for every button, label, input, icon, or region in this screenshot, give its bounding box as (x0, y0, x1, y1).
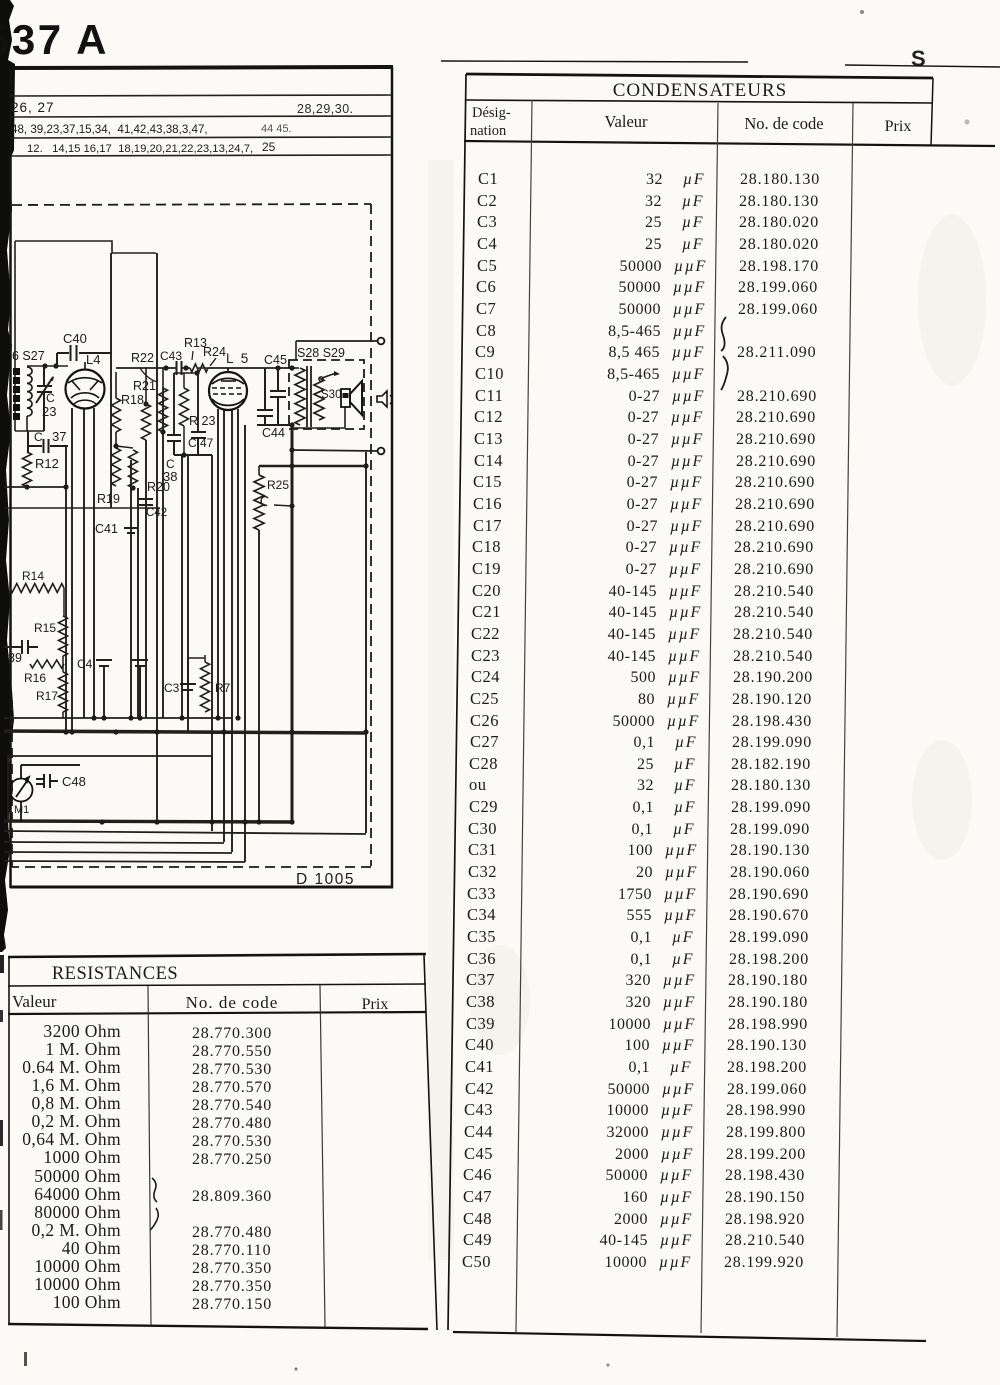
svg-text:25: 25 (645, 236, 662, 253)
svg-text:C49: C49 (463, 1230, 492, 1249)
svg-text:28.770.150: 28.770.150 (192, 1296, 272, 1313)
svg-text:26, 27: 26, 27 (11, 100, 55, 115)
svg-text:CONDENSATEURS: CONDENSATEURS (613, 80, 788, 101)
svg-text:L4: L4 (86, 352, 100, 367)
svg-text:28.198.200: 28.198.200 (727, 1059, 807, 1076)
svg-text:28.198.920: 28.198.920 (725, 1211, 805, 1228)
svg-text:40-145: 40-145 (608, 648, 656, 665)
svg-text:C34: C34 (467, 905, 496, 924)
svg-text:C48: C48 (62, 774, 86, 789)
svg-text:C43: C43 (160, 349, 182, 363)
svg-text:1750: 1750 (618, 886, 652, 903)
svg-text:R17: R17 (36, 689, 58, 703)
svg-text:µF: µF (674, 756, 696, 773)
svg-text:µµF: µµF (670, 518, 703, 535)
svg-text:28.210.690: 28.210.690 (734, 539, 814, 556)
svg-text:28.210.690: 28.210.690 (736, 453, 816, 470)
svg-text:1 M. Ohm: 1 M. Ohm (45, 1039, 121, 1059)
svg-text:C28: C28 (469, 754, 498, 773)
svg-text:0,1: 0,1 (633, 799, 655, 816)
svg-text:Valeur: Valeur (604, 112, 648, 131)
svg-text:µµF: µµF (668, 669, 701, 686)
svg-text:100: 100 (625, 1037, 651, 1054)
svg-text:8,5 465: 8,5 465 (609, 344, 661, 361)
svg-text:28.180.130: 28.180.130 (740, 171, 820, 188)
svg-text:0,2 M. Ohm: 0,2 M. Ohm (31, 1220, 121, 1240)
svg-text:C10: C10 (475, 364, 504, 383)
svg-text:C47: C47 (463, 1187, 492, 1206)
svg-text:40-145: 40-145 (608, 626, 656, 643)
svg-text:No. de code: No. de code (186, 993, 279, 1012)
svg-text:0-27: 0-27 (627, 518, 658, 535)
svg-text:8,5-465: 8,5-465 (607, 366, 660, 383)
svg-text:28.190.120: 28.190.120 (732, 691, 812, 708)
svg-text:µµF: µµF (663, 1016, 696, 1033)
svg-text:28.770.350: 28.770.350 (192, 1260, 272, 1277)
svg-text:µF: µF (682, 193, 704, 210)
svg-text:µµF: µµF (672, 366, 705, 383)
svg-text:C24: C24 (471, 667, 500, 686)
svg-text:C29: C29 (469, 797, 498, 816)
svg-text:C25: C25 (470, 689, 499, 708)
svg-text:C5: C5 (477, 256, 497, 275)
svg-text:µµF: µµF (661, 1102, 694, 1119)
svg-text:µF: µF (675, 734, 697, 751)
svg-text:44 45.: 44 45. (261, 123, 292, 135)
svg-text:S30: S30 (321, 389, 341, 401)
svg-text:100: 100 (628, 842, 654, 859)
svg-text:µµF: µµF (670, 474, 703, 491)
svg-text:C18: C18 (472, 537, 501, 556)
svg-text:C32: C32 (468, 862, 497, 881)
svg-text:537 A: 537 A (0, 16, 109, 63)
svg-text:C4: C4 (77, 657, 93, 671)
svg-text:No. de code: No. de code (744, 114, 823, 133)
svg-text:R24: R24 (203, 345, 226, 359)
svg-text:µµF: µµF (665, 842, 698, 859)
svg-text:µµF: µµF (667, 691, 700, 708)
svg-text:28.190.060: 28.190.060 (730, 864, 810, 881)
svg-text:28.198.990: 28.198.990 (726, 1102, 806, 1119)
svg-text:20: 20 (636, 864, 653, 881)
svg-text:28.770.530: 28.770.530 (192, 1133, 272, 1150)
svg-text:D 1005: D 1005 (296, 871, 355, 888)
svg-text:µF: µF (672, 929, 694, 946)
svg-text:C37: C37 (466, 970, 495, 989)
svg-text:80000 Ohm: 80000 Ohm (34, 1202, 121, 1222)
svg-text:µµF: µµF (668, 648, 701, 665)
svg-text:555: 555 (627, 907, 653, 924)
svg-text:µµF: µµF (659, 1254, 692, 1271)
svg-text:C: C (46, 391, 55, 405)
svg-text:80: 80 (638, 691, 655, 708)
svg-text:28.210.690: 28.210.690 (736, 409, 816, 426)
svg-text:C4: C4 (477, 234, 497, 253)
svg-text:28.770.250: 28.770.250 (192, 1151, 272, 1168)
svg-text:64000 Ohm: 64000 Ohm (34, 1184, 121, 1204)
svg-text:µµF: µµF (672, 344, 705, 361)
svg-text:28.770.530: 28.770.530 (192, 1061, 272, 1078)
svg-text:28.770.540: 28.770.540 (192, 1097, 272, 1114)
svg-text:C35: C35 (467, 927, 496, 946)
svg-text:S28 S29: S28 S29 (297, 346, 345, 360)
svg-text:48, 39,23,37,15,34, 41,42,43,: 48, 39,23,37,15,34, 41,42,43,38,3,47, (11, 123, 208, 136)
svg-text:Valeur: Valeur (12, 992, 57, 1011)
svg-text:C48: C48 (463, 1209, 492, 1228)
svg-text:0,1: 0,1 (632, 821, 654, 838)
svg-text:µµF: µµF (663, 972, 696, 989)
svg-text:320: 320 (626, 994, 652, 1011)
svg-text:28.809.360: 28.809.360 (192, 1188, 272, 1205)
svg-text:3200 Ohm: 3200 Ohm (43, 1021, 121, 1041)
svg-text:µF: µF (683, 171, 705, 188)
svg-text:µµF: µµF (662, 1081, 695, 1098)
svg-text:38: 38 (163, 469, 177, 484)
svg-text:10000 Ohm: 10000 Ohm (34, 1274, 121, 1294)
svg-text:28.210.690: 28.210.690 (735, 518, 815, 535)
svg-text:28.210.690: 28.210.690 (734, 561, 814, 578)
svg-text:28.770.480: 28.770.480 (192, 1115, 272, 1132)
svg-text:28.190.130: 28.190.130 (730, 842, 810, 859)
svg-text:28.210.540: 28.210.540 (733, 626, 813, 643)
svg-text:µF: µF (672, 951, 694, 968)
svg-text:28.190.150: 28.190.150 (725, 1189, 805, 1206)
svg-text:C43: C43 (464, 1100, 493, 1119)
svg-text:C12: C12 (474, 407, 503, 426)
svg-text:C11: C11 (475, 386, 503, 405)
svg-text:S: S (911, 46, 926, 71)
svg-text:0,1: 0,1 (631, 929, 653, 946)
svg-text:32: 32 (645, 193, 662, 210)
svg-text:28.199.090: 28.199.090 (731, 799, 811, 816)
svg-text:28.180.020: 28.180.020 (739, 214, 819, 231)
svg-text:1000 Ohm: 1000 Ohm (43, 1147, 121, 1167)
svg-text:R14: R14 (22, 569, 44, 583)
svg-text:40-145: 40-145 (609, 604, 657, 621)
svg-text:28.198.200: 28.198.200 (729, 951, 809, 968)
svg-text:50000: 50000 (606, 1167, 649, 1184)
svg-text:µµF: µµF (668, 626, 701, 643)
svg-text:28.198.430: 28.198.430 (732, 713, 812, 730)
svg-text:28.180.020: 28.180.020 (739, 236, 819, 253)
svg-text:50000: 50000 (620, 258, 663, 275)
svg-text:28.210.540: 28.210.540 (733, 648, 813, 665)
svg-text:28.182.190: 28.182.190 (731, 756, 811, 773)
svg-text:µµF: µµF (669, 539, 702, 556)
svg-text:ou: ou (469, 775, 487, 794)
svg-text:µµF: µµF (672, 388, 705, 405)
svg-text:µµF: µµF (667, 713, 700, 730)
svg-text:32000: 32000 (607, 1124, 650, 1141)
svg-text:C45: C45 (264, 353, 287, 367)
svg-text:8,5-465: 8,5-465 (608, 323, 661, 340)
svg-text:12. 14,15 16,17 18,19,20,21: 12. 14,15 16,17 18,19,20,21,22,23,13,24,… (27, 143, 253, 155)
svg-text:28.199.090: 28.199.090 (730, 821, 810, 838)
svg-text:28.190.180: 28.190.180 (728, 972, 808, 989)
svg-text:28.770.110: 28.770.110 (192, 1242, 271, 1259)
svg-text:C50: C50 (462, 1252, 491, 1271)
svg-text:160: 160 (623, 1189, 649, 1206)
svg-text:28.770.550: 28.770.550 (192, 1043, 272, 1060)
svg-text:0-27: 0-27 (629, 388, 660, 405)
svg-text:µµF: µµF (660, 1189, 693, 1206)
svg-text:100 Ohm: 100 Ohm (53, 1292, 121, 1312)
svg-text:C13: C13 (474, 429, 503, 448)
svg-text:0-27: 0-27 (626, 561, 657, 578)
svg-text:28.190.690: 28.190.690 (729, 886, 809, 903)
svg-text:28.180.130: 28.180.130 (731, 777, 811, 794)
svg-text:R16: R16 (24, 671, 46, 685)
svg-text:R 23: R 23 (189, 414, 215, 428)
svg-text:28.770.350: 28.770.350 (192, 1278, 272, 1295)
svg-text:C: C (34, 430, 43, 444)
svg-text:0,1: 0,1 (634, 734, 656, 751)
svg-text:C41: C41 (465, 1057, 494, 1076)
svg-text:µµF: µµF (660, 1211, 693, 1228)
svg-text:0,8 M. Ohm: 0,8 M. Ohm (31, 1093, 121, 1113)
svg-text:40-145: 40-145 (600, 1232, 648, 1249)
svg-text:µµF: µµF (673, 323, 706, 340)
svg-text:C14: C14 (474, 451, 503, 470)
svg-text:C3: C3 (164, 681, 180, 695)
svg-text:µF: µF (670, 1059, 692, 1076)
svg-text:µµF: µµF (662, 1037, 695, 1054)
svg-text:R7: R7 (215, 681, 231, 695)
svg-text:RESISTANCES: RESISTANCES (52, 964, 178, 984)
svg-text:µµF: µµF (665, 864, 698, 881)
svg-text:C17: C17 (473, 516, 502, 535)
svg-text:0-27: 0-27 (626, 539, 657, 556)
svg-text:µµF: µµF (661, 1124, 694, 1141)
svg-text:M1: M1 (14, 804, 29, 816)
svg-text:C40: C40 (63, 331, 87, 346)
svg-text:10000: 10000 (605, 1254, 648, 1271)
svg-text:28.198.990: 28.198.990 (728, 1016, 808, 1033)
svg-text:C22: C22 (471, 624, 500, 643)
svg-text:50000: 50000 (619, 279, 662, 296)
svg-text:R21: R21 (133, 379, 156, 393)
svg-text:25: 25 (262, 140, 276, 154)
svg-text:µF: µF (682, 236, 704, 253)
svg-text:C38: C38 (466, 992, 495, 1011)
svg-text:Prix: Prix (362, 996, 389, 1013)
svg-text:C3: C3 (477, 212, 497, 231)
svg-text:0,64 M. Ohm: 0,64 M. Ohm (22, 1129, 121, 1149)
svg-text:µµF: µµF (671, 453, 704, 470)
svg-text:C44: C44 (464, 1122, 493, 1141)
svg-text:28.770.480: 28.770.480 (192, 1224, 272, 1241)
svg-text:C21: C21 (472, 602, 501, 621)
svg-text:28,29,30.: 28,29,30. (297, 102, 354, 116)
svg-text:28.190.200: 28.190.200 (733, 669, 813, 686)
svg-text:C30: C30 (468, 819, 497, 838)
svg-text:0-27: 0-27 (628, 431, 659, 448)
svg-text:C44: C44 (262, 426, 285, 440)
svg-text:µF: µF (674, 799, 696, 816)
svg-text:R25: R25 (267, 478, 289, 492)
svg-text:C15: C15 (473, 472, 502, 491)
svg-text:µµF: µµF (660, 1232, 693, 1249)
svg-text:320: 320 (626, 972, 652, 989)
svg-text:µµF: µµF (661, 1146, 694, 1163)
svg-text:C20: C20 (472, 581, 501, 600)
svg-text:R15: R15 (34, 621, 56, 635)
svg-text:R22: R22 (131, 351, 154, 365)
svg-text:40 Ohm: 40 Ohm (62, 1238, 121, 1258)
svg-text:0-27: 0-27 (627, 496, 658, 513)
svg-text:0-27: 0-27 (628, 453, 659, 470)
svg-text:32: 32 (646, 171, 663, 188)
svg-text:µF: µF (682, 214, 704, 231)
svg-text:Prix: Prix (885, 118, 912, 135)
svg-text:0,1: 0,1 (631, 951, 653, 968)
svg-text:28.199.060: 28.199.060 (738, 279, 818, 296)
svg-text:C9: C9 (475, 342, 495, 361)
svg-text:µµF: µµF (660, 1167, 693, 1184)
svg-text:µµF: µµF (664, 886, 697, 903)
svg-text:C8: C8 (476, 321, 496, 340)
svg-text:C42: C42 (465, 1079, 494, 1098)
svg-text:2000: 2000 (614, 1211, 648, 1228)
svg-text:23: 23 (42, 404, 56, 419)
svg-text:28.770.300: 28.770.300 (192, 1025, 272, 1042)
svg-text:28.210.540: 28.210.540 (725, 1232, 805, 1249)
svg-text:28.210.690: 28.210.690 (736, 431, 816, 448)
svg-text:28.180.130: 28.180.130 (739, 193, 819, 210)
svg-text:1,6 M. Ohm: 1,6 M. Ohm (31, 1075, 121, 1095)
svg-text:25: 25 (637, 756, 654, 773)
svg-text:0.64 M. Ohm: 0.64 M. Ohm (22, 1057, 121, 1077)
svg-text:C27: C27 (470, 732, 499, 751)
svg-text:28.210.540: 28.210.540 (734, 604, 814, 621)
svg-text:C6: C6 (476, 277, 496, 296)
svg-text:28.198.430: 28.198.430 (725, 1167, 805, 1184)
svg-text:µµF: µµF (673, 301, 706, 318)
svg-text:28.190.180: 28.190.180 (728, 994, 808, 1011)
svg-text:C42: C42 (146, 507, 167, 519)
svg-text:28.210.690: 28.210.690 (737, 388, 817, 405)
svg-text:C2: C2 (477, 191, 497, 210)
svg-text:Désig-: Désig- (472, 105, 511, 121)
svg-text:40-145: 40-145 (609, 583, 657, 600)
svg-text:28.199.090: 28.199.090 (729, 929, 809, 946)
svg-text:28.190.130: 28.190.130 (727, 1037, 807, 1054)
svg-text:µµF: µµF (673, 279, 706, 296)
svg-text:500: 500 (631, 669, 657, 686)
svg-text:28.210.690: 28.210.690 (735, 496, 815, 513)
svg-text:C23: C23 (471, 646, 500, 665)
svg-text:R19: R19 (97, 492, 120, 506)
svg-text:C40: C40 (465, 1035, 494, 1054)
svg-text:µµF: µµF (663, 994, 696, 1011)
svg-text:28.198.170: 28.198.170 (739, 258, 819, 275)
svg-text:28.199.090: 28.199.090 (732, 734, 812, 751)
svg-text:2000: 2000 (615, 1146, 649, 1163)
svg-text:28.770.570: 28.770.570 (192, 1079, 272, 1096)
svg-text:0,1: 0,1 (629, 1059, 651, 1076)
svg-text:C36: C36 (467, 949, 496, 968)
svg-text:28.190.670: 28.190.670 (729, 907, 809, 924)
svg-text:50000: 50000 (608, 1081, 651, 1098)
svg-text:25: 25 (645, 214, 662, 231)
svg-text:32: 32 (637, 777, 654, 794)
svg-text:R12: R12 (35, 456, 59, 471)
svg-text:C39: C39 (466, 1014, 495, 1033)
svg-text:µµF: µµF (671, 431, 704, 448)
svg-text:µF: µF (674, 777, 696, 794)
svg-text:µµF: µµF (669, 583, 702, 600)
svg-text:10000: 10000 (609, 1016, 652, 1033)
svg-text:C16: C16 (473, 494, 502, 513)
svg-text:L 5: L 5 (226, 351, 250, 366)
svg-text:6 S27: 6 S27 (12, 349, 45, 363)
svg-text:µµF: µµF (670, 496, 703, 513)
svg-text:C46: C46 (463, 1165, 492, 1184)
svg-text:0-27: 0-27 (628, 409, 659, 426)
svg-text:28.199.060: 28.199.060 (727, 1081, 807, 1098)
svg-text:µµF: µµF (674, 258, 707, 275)
svg-text:50000: 50000 (613, 713, 656, 730)
svg-text:C1: C1 (478, 169, 498, 188)
svg-text:28.210.540: 28.210.540 (734, 583, 814, 600)
svg-text:nation: nation (470, 123, 507, 139)
svg-text:C 47: C 47 (188, 436, 214, 450)
svg-text:R18: R18 (121, 393, 144, 407)
svg-text:28.199.200: 28.199.200 (726, 1146, 806, 1163)
svg-text:µµF: µµF (669, 561, 702, 578)
svg-text:C41: C41 (95, 522, 118, 536)
svg-text:28.199.920: 28.199.920 (724, 1254, 804, 1271)
svg-text:37: 37 (52, 429, 66, 444)
svg-text:39: 39 (8, 651, 22, 665)
svg-text:µµF: µµF (671, 409, 704, 426)
svg-text:10000 Ohm: 10000 Ohm (34, 1256, 121, 1276)
svg-text:0,2 M. Ohm: 0,2 M. Ohm (31, 1111, 121, 1131)
svg-text:28.210.690: 28.210.690 (735, 474, 815, 491)
svg-text:µµF: µµF (664, 907, 697, 924)
svg-text:C33: C33 (467, 884, 496, 903)
svg-text:C26: C26 (470, 711, 499, 730)
svg-text:0-27: 0-27 (627, 474, 658, 491)
svg-text:C19: C19 (472, 559, 501, 578)
svg-text:C45: C45 (464, 1144, 493, 1163)
svg-text:50000: 50000 (619, 301, 662, 318)
svg-text:µµF: µµF (669, 604, 702, 621)
svg-text:10000: 10000 (607, 1102, 650, 1119)
svg-text:C31: C31 (468, 840, 497, 859)
svg-text:28.199.060: 28.199.060 (738, 301, 818, 318)
svg-text:C7: C7 (476, 299, 496, 318)
svg-text:µF: µF (673, 821, 695, 838)
svg-text:50000 Ohm: 50000 Ohm (34, 1166, 121, 1186)
svg-text:28.211.090: 28.211.090 (737, 344, 816, 361)
svg-text:28.199.800: 28.199.800 (726, 1124, 806, 1141)
